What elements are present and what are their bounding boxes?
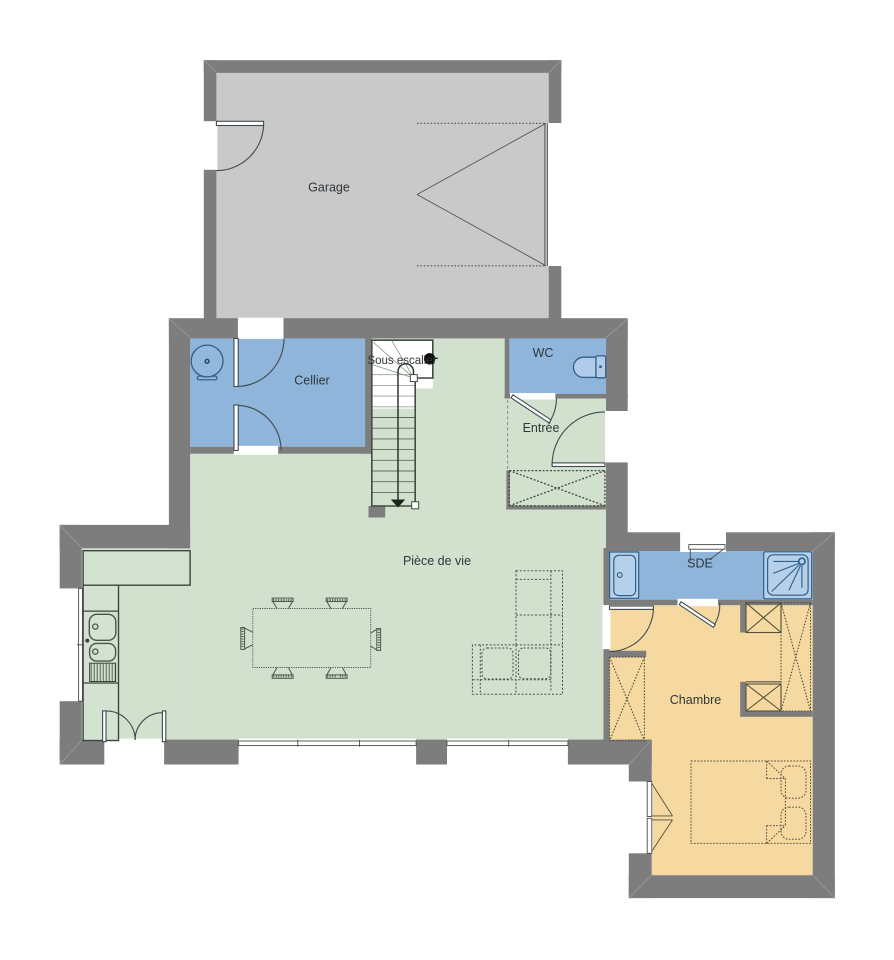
svg-text:Pièce de vie: Pièce de vie — [403, 554, 471, 568]
svg-text:SDE: SDE — [687, 557, 713, 571]
svg-text:Sous escalier: Sous escalier — [367, 355, 436, 367]
svg-text:Entrée: Entrée — [523, 421, 560, 435]
svg-text:Chambre: Chambre — [670, 693, 721, 707]
svg-text:WC: WC — [533, 346, 554, 360]
svg-text:Garage: Garage — [308, 181, 350, 195]
svg-text:Cellier: Cellier — [294, 374, 329, 388]
